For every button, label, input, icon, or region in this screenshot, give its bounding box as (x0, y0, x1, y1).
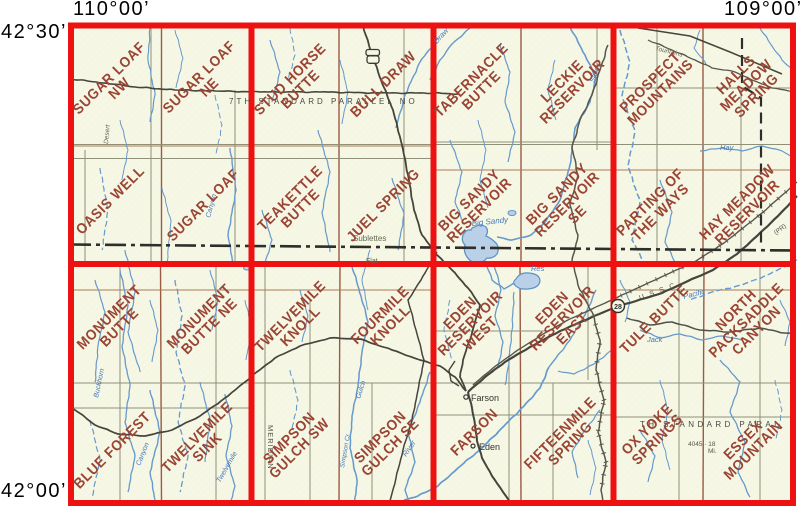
svg-text:Res: Res (531, 264, 545, 273)
svg-text:Mi.: Mi. (708, 448, 717, 455)
svg-text:Eden: Eden (479, 442, 500, 452)
svg-text:Flat: Flat (366, 258, 378, 265)
svg-text:Farson: Farson (471, 393, 499, 403)
svg-text:28: 28 (614, 304, 622, 311)
svg-text:Hay: Hay (720, 143, 735, 152)
svg-text:4045 · 18: 4045 · 18 (688, 441, 716, 448)
svg-text:Jack: Jack (646, 335, 664, 344)
